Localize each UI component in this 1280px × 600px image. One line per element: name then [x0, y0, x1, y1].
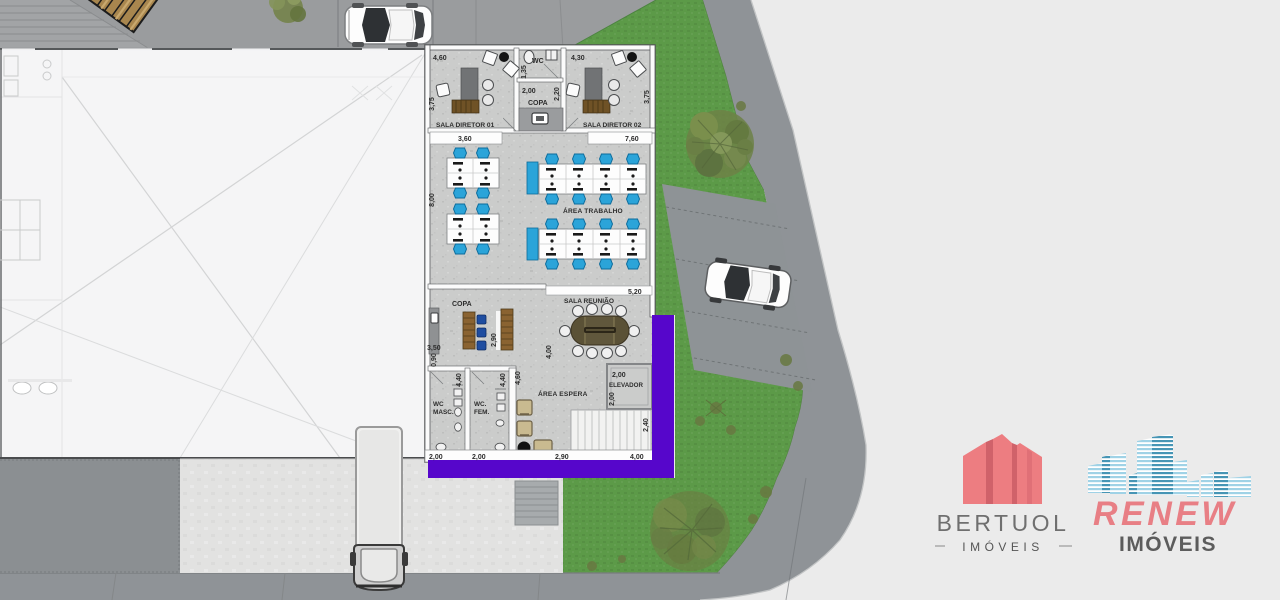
svg-text:SALA REUNIÃO: SALA REUNIÃO	[564, 296, 614, 305]
svg-text:1,35: 1,35	[521, 65, 528, 79]
svg-text:2,00: 2,00	[429, 454, 443, 461]
svg-text:4,30: 4,30	[571, 55, 585, 62]
svg-text:4,60: 4,60	[515, 371, 522, 385]
svg-text:4,40: 4,40	[456, 373, 463, 387]
svg-text:SALA DIRETOR 01: SALA DIRETOR 01	[436, 122, 495, 129]
svg-text:4,40: 4,40	[500, 373, 507, 387]
svg-text:SALA DIRETOR 02: SALA DIRETOR 02	[583, 122, 642, 129]
svg-text:4,60: 4,60	[433, 55, 447, 62]
svg-text:WC: WC	[532, 58, 544, 65]
svg-text:7,60: 7,60	[625, 136, 639, 143]
svg-text:3,75: 3,75	[429, 97, 436, 111]
svg-text:2,00: 2,00	[472, 454, 486, 461]
svg-text:IMÓVEIS: IMÓVEIS	[1119, 532, 1217, 556]
svg-text:3,60: 3,60	[458, 136, 472, 143]
svg-text:4,00: 4,00	[630, 454, 644, 461]
svg-text:FEM.: FEM.	[474, 409, 489, 416]
svg-text:3,50: 3,50	[427, 345, 441, 352]
svg-text:RENEW: RENEW	[1093, 495, 1237, 533]
svg-text:2,20: 2,20	[554, 87, 561, 101]
svg-text:2,00: 2,00	[612, 372, 626, 379]
svg-text:WC: WC	[433, 401, 444, 408]
svg-text:COPA: COPA	[528, 100, 548, 107]
svg-text:0,90: 0,90	[431, 353, 438, 367]
svg-text:ELEVADOR: ELEVADOR	[609, 382, 643, 389]
svg-text:BERTUOL: BERTUOL	[937, 510, 1070, 536]
svg-text:3,75: 3,75	[644, 90, 651, 104]
svg-text:4,00: 4,00	[546, 345, 553, 359]
svg-text:2,90: 2,90	[491, 333, 498, 347]
svg-text:2,00: 2,00	[609, 392, 616, 406]
svg-text:COPA: COPA	[452, 301, 472, 308]
svg-text:ÁREA TRABALHO: ÁREA TRABALHO	[563, 206, 623, 215]
svg-text:2,00: 2,00	[522, 88, 536, 95]
svg-text:MASC.: MASC.	[433, 409, 454, 416]
svg-text:WC.: WC.	[474, 401, 487, 408]
svg-text:8,00: 8,00	[429, 193, 436, 207]
svg-text:5,20: 5,20	[628, 289, 642, 296]
svg-text:IMÓVEIS: IMÓVEIS	[962, 539, 1044, 554]
svg-text:2,40: 2,40	[643, 418, 650, 432]
svg-text:2,90: 2,90	[555, 454, 569, 461]
svg-text:ÁREA ESPERA: ÁREA ESPERA	[538, 389, 588, 398]
